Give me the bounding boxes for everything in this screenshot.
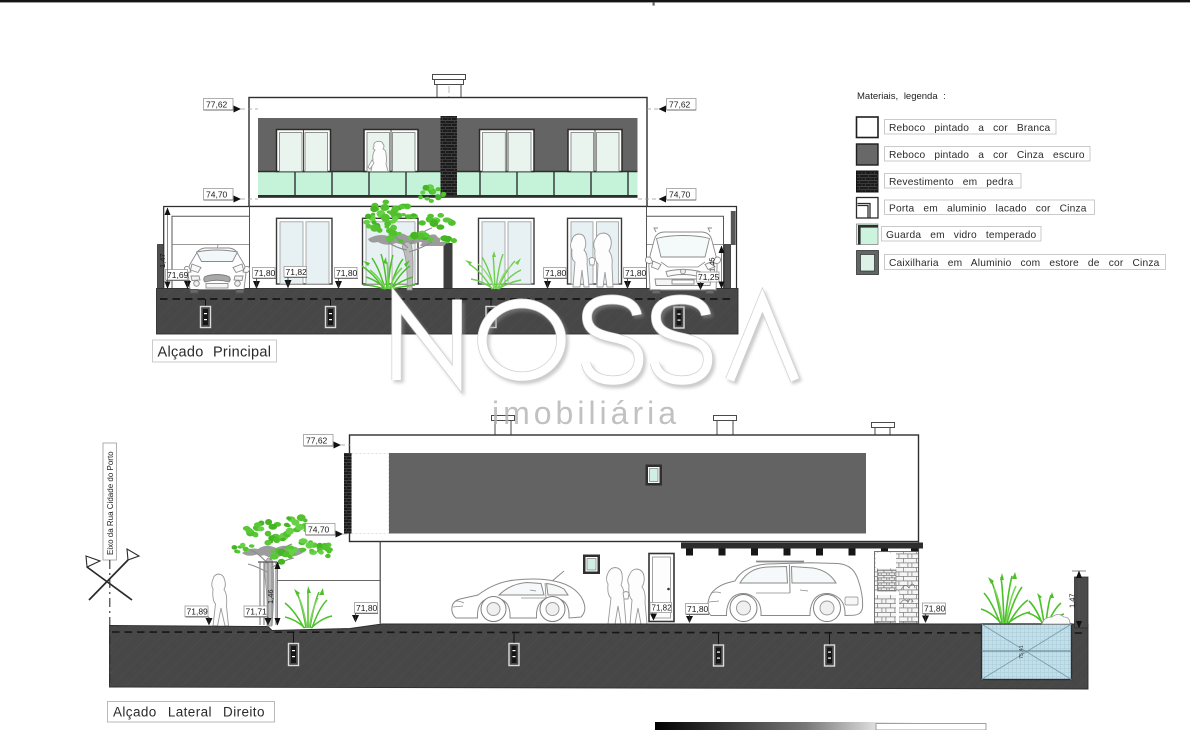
- svg-text:77,62: 77,62: [306, 436, 328, 446]
- svg-text:71,80: 71,80: [254, 268, 276, 278]
- svg-text:1,47: 1,47: [1068, 593, 1077, 608]
- svg-text:77,62: 77,62: [669, 100, 691, 110]
- svg-text:imobiliária: imobiliária: [492, 395, 680, 431]
- svg-text:71,80: 71,80: [687, 604, 709, 614]
- svg-text:74,70: 74,70: [206, 190, 228, 200]
- svg-text:71,80: 71,80: [625, 268, 647, 278]
- svg-text:71,25: 71,25: [698, 272, 720, 282]
- svg-text:Alçado Principal: Alçado Principal: [158, 345, 272, 361]
- svg-text:Reboco pintado a cor Branca: Reboco pintado a cor Branca: [889, 123, 1050, 134]
- svg-text:77,62: 77,62: [206, 100, 228, 110]
- svg-text:74,70: 74,70: [669, 190, 691, 200]
- svg-text:71,80: 71,80: [336, 268, 358, 278]
- svg-text:Eixo da Rua Cidade do Porto: Eixo da Rua Cidade do Porto: [106, 451, 115, 555]
- svg-text:71,82: 71,82: [286, 267, 308, 277]
- svg-text:71,80: 71,80: [545, 268, 567, 278]
- svg-text:Revestimento em pedra: Revestimento em pedra: [889, 177, 1013, 188]
- svg-text:Reboco pintado a cor Cinza esc: Reboco pintado a cor Cinza escuro: [889, 150, 1085, 161]
- svg-text:71,80: 71,80: [356, 603, 378, 613]
- svg-text:1,46: 1,46: [266, 589, 275, 604]
- svg-text:Caixilharia em Aluminio com es: Caixilharia em Aluminio com estore de co…: [889, 258, 1160, 269]
- svg-text:Porta em aluminio lacado cor C: Porta em aluminio lacado cor Cinza: [889, 204, 1087, 215]
- svg-text:1,47: 1,47: [158, 253, 167, 268]
- svg-text:75,41: 75,41: [1019, 645, 1025, 659]
- svg-text:71,69: 71,69: [167, 270, 189, 280]
- svg-text:74,70: 74,70: [308, 525, 330, 535]
- svg-text:1,45: 1,45: [708, 257, 717, 272]
- svg-text:Guarda em vidro temperado: Guarda em vidro temperado: [886, 230, 1037, 241]
- svg-text:71,80: 71,80: [924, 604, 946, 614]
- svg-text:Materiais, legenda :: Materiais, legenda :: [857, 91, 946, 102]
- svg-text:71,82: 71,82: [652, 604, 673, 613]
- svg-text:Alçado Lateral Direito: Alçado Lateral Direito: [113, 705, 265, 720]
- svg-text:71,89: 71,89: [187, 607, 209, 617]
- svg-text:71,71: 71,71: [246, 607, 268, 617]
